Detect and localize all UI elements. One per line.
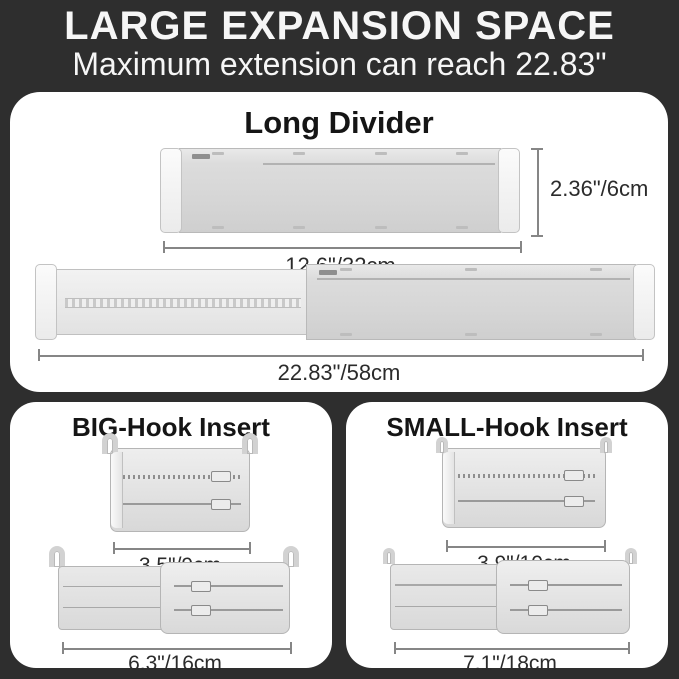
compressed-width-dimension-line	[163, 241, 522, 253]
slider-tab	[564, 470, 584, 481]
height-dimension-label: 2.36"/6cm	[550, 176, 660, 202]
slide-track	[123, 503, 240, 505]
small-hook-title: SMALL-Hook Insert	[346, 412, 668, 443]
slide-track	[174, 609, 283, 611]
big-hook-title: BIG-Hook Insert	[10, 412, 332, 443]
mount-slots-top	[212, 152, 468, 155]
slider-tab	[211, 499, 231, 510]
hook-icon	[600, 437, 612, 453]
small-hook-insert-compressed	[442, 448, 606, 528]
divider-seam	[317, 278, 630, 280]
slider-tab	[528, 605, 548, 616]
slide-track	[458, 500, 596, 502]
small-hook-panel: SMALL-Hook Insert 3.9"/10cm 7.1"/18cm	[346, 402, 668, 668]
slider-tab	[564, 496, 584, 507]
insert-extension-part	[390, 564, 503, 629]
insert-end-cap	[111, 452, 123, 528]
extension-beam	[54, 269, 312, 334]
long-divider-title: Long Divider	[10, 105, 668, 141]
slider-tab	[528, 580, 548, 591]
ratchet-track	[65, 298, 301, 308]
divider-right-cap	[633, 264, 655, 340]
hook-icon	[383, 548, 395, 564]
mount-slots-top	[340, 268, 602, 271]
hook-icon	[436, 437, 448, 453]
hook-icon	[102, 433, 118, 454]
small-hook-compressed-dimension-line	[446, 540, 606, 552]
insert-main-part	[496, 560, 630, 634]
small-hook-insert-extended	[390, 560, 630, 634]
divider-compressed-illustration	[160, 148, 520, 233]
extended-width-dimension-label: 22.83"/58cm	[38, 360, 640, 386]
ratchet-track	[123, 475, 240, 479]
insert-end-cap	[443, 452, 455, 524]
header: LARGE EXPANSION SPACE Maximum extension …	[0, 0, 679, 92]
divider-body	[306, 264, 636, 340]
slide-track	[174, 585, 283, 587]
slide-track	[510, 609, 623, 611]
divider-left-cap	[35, 264, 57, 340]
divider-left-cap	[160, 148, 182, 233]
header-title: LARGE EXPANSION SPACE	[0, 5, 679, 47]
hook-icon	[242, 433, 258, 454]
big-hook-insert-extended	[58, 562, 290, 634]
header-subtitle: Maximum extension can reach 22.83"	[0, 47, 679, 82]
hook-icon	[49, 546, 65, 567]
mount-slots-bottom	[340, 333, 602, 336]
ratchet-track	[458, 474, 596, 478]
divider-extended-illustration	[35, 264, 670, 340]
long-divider-panel: Long Divider 2.36"/6cm 12.6"/32cm	[10, 92, 668, 392]
big-hook-extended-dimension-label: 6.3"/16cm	[62, 652, 288, 676]
slider-tab	[191, 605, 211, 616]
slider-tab	[211, 471, 231, 482]
small-hook-extended-dimension-label: 7.1"/18cm	[394, 652, 626, 676]
divider-seam	[263, 163, 495, 165]
height-dimension-line	[531, 148, 543, 237]
mount-slots-bottom	[212, 226, 468, 229]
slider-tab	[191, 581, 211, 592]
brand-mark	[192, 154, 210, 159]
insert-main-part	[160, 562, 290, 634]
divider-right-cap	[498, 148, 520, 233]
brand-mark	[319, 270, 337, 275]
big-hook-compressed-dimension-line	[113, 542, 251, 554]
slide-track	[510, 584, 623, 586]
big-hook-panel: BIG-Hook Insert 3.5"/9cm 6.3"/16cm	[10, 402, 332, 668]
big-hook-insert-compressed	[110, 448, 250, 532]
insert-extension-part	[58, 566, 167, 629]
divider-body	[179, 148, 501, 233]
